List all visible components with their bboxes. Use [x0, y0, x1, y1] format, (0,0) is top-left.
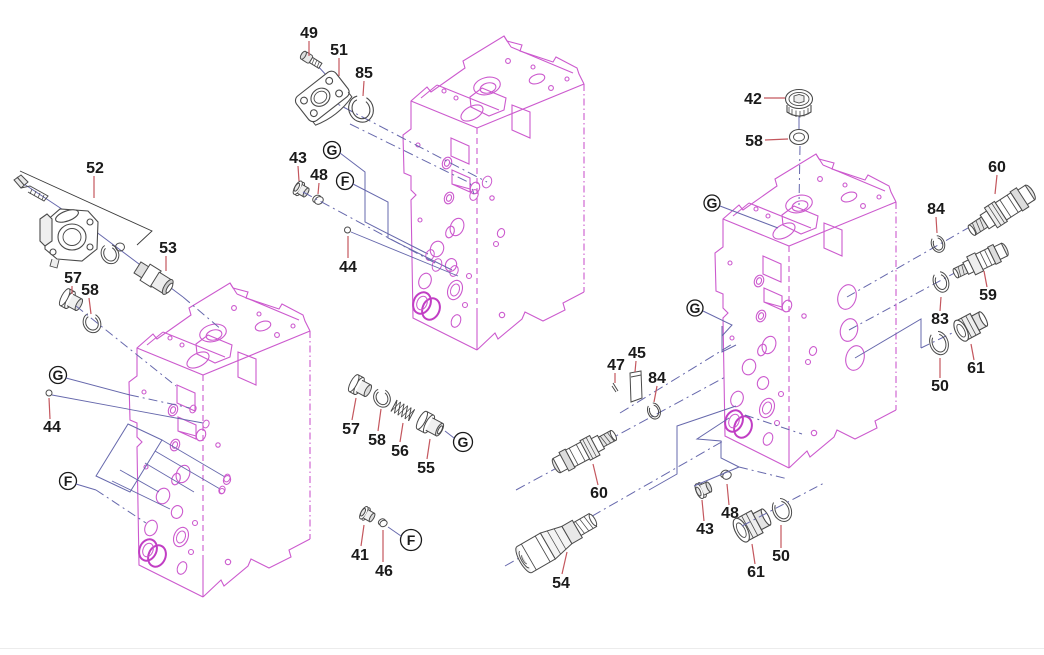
svg-text:85: 85 [355, 65, 373, 82]
svg-text:46: 46 [375, 563, 393, 580]
svg-text:52: 52 [86, 160, 104, 177]
svg-text:44: 44 [43, 419, 61, 436]
svg-text:43: 43 [289, 150, 307, 167]
svg-text:44: 44 [339, 259, 357, 276]
svg-text:G: G [53, 367, 64, 383]
svg-text:60: 60 [988, 159, 1006, 176]
svg-text:G: G [690, 300, 701, 316]
svg-text:84: 84 [648, 370, 666, 387]
svg-text:49: 49 [300, 25, 318, 42]
svg-text:F: F [341, 173, 350, 189]
svg-text:48: 48 [310, 167, 328, 184]
svg-text:50: 50 [931, 378, 949, 395]
svg-text:60: 60 [590, 485, 608, 502]
svg-text:51: 51 [330, 42, 348, 59]
svg-text:61: 61 [967, 360, 985, 377]
svg-text:54: 54 [552, 575, 570, 592]
svg-text:G: G [327, 142, 338, 158]
svg-text:61: 61 [747, 564, 765, 581]
svg-text:50: 50 [772, 548, 790, 565]
svg-text:58: 58 [745, 133, 763, 150]
svg-text:53: 53 [159, 240, 177, 257]
svg-text:56: 56 [391, 443, 409, 460]
svg-text:G: G [458, 434, 469, 450]
svg-text:F: F [64, 473, 73, 489]
svg-text:47: 47 [607, 357, 625, 374]
svg-text:43: 43 [696, 521, 714, 538]
svg-text:55: 55 [417, 460, 435, 477]
svg-text:57: 57 [342, 421, 360, 438]
svg-text:84: 84 [927, 201, 945, 218]
svg-text:59: 59 [979, 287, 997, 304]
svg-text:42: 42 [744, 91, 762, 108]
svg-text:83: 83 [931, 311, 949, 328]
svg-text:F: F [407, 532, 416, 548]
svg-text:58: 58 [368, 432, 386, 449]
svg-text:45: 45 [628, 345, 646, 362]
svg-text:57: 57 [64, 270, 82, 287]
svg-text:G: G [707, 195, 718, 211]
svg-text:41: 41 [351, 547, 369, 564]
svg-text:58: 58 [81, 282, 99, 299]
